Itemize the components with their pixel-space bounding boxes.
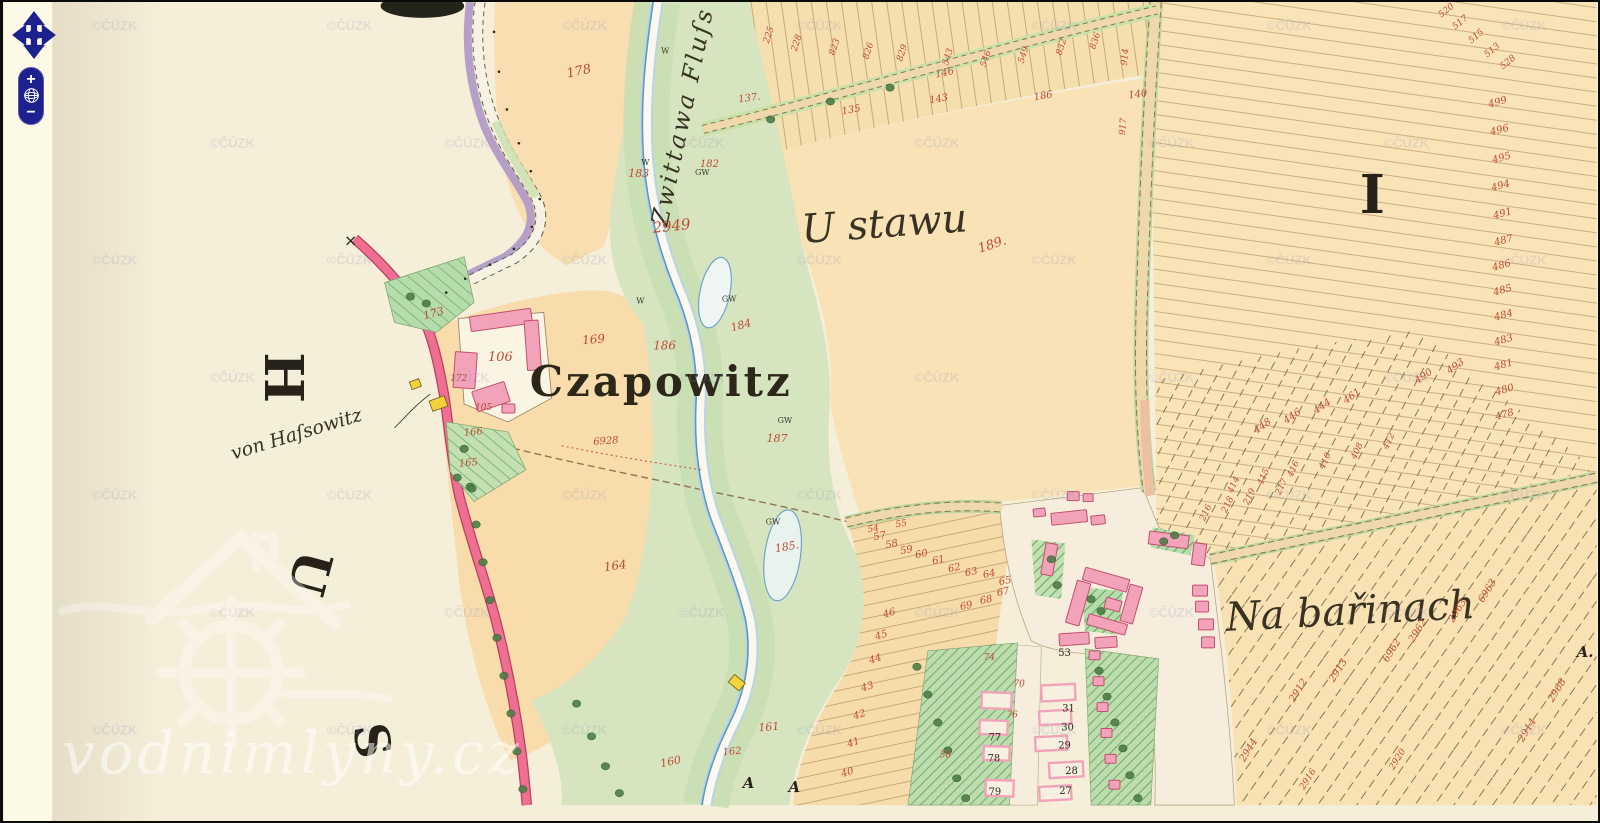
tree-symbol [479, 559, 487, 566]
cuzk-watermark: ©ČÚZK [914, 605, 960, 620]
cuzk-watermark: ©ČÚZK [679, 605, 725, 620]
groundwater-label: W [636, 297, 645, 306]
building [1191, 543, 1207, 566]
letter-a: A. [1575, 643, 1594, 661]
house-number: 28 [1065, 766, 1078, 777]
parcel-number: 70 [1013, 680, 1025, 690]
building [1202, 637, 1215, 648]
tree-symbol [572, 700, 580, 707]
tree-symbol [953, 775, 961, 782]
cuzk-watermark: ©ČÚZK [1384, 135, 1430, 150]
cuzk-watermark: ©ČÚZK [562, 253, 608, 268]
house-number: 78 [988, 753, 1001, 764]
building [1083, 494, 1093, 502]
zoom-in-button[interactable]: + [18, 72, 44, 86]
building [502, 404, 515, 413]
house-number: 77 [989, 732, 1002, 743]
cuzk-watermark: ©ČÚZK [1266, 722, 1312, 737]
cuzk-watermark: ©ČÚZK [679, 370, 725, 385]
tree-symbol [615, 790, 623, 797]
cuzk-watermark: ©ČÚZK [1031, 18, 1077, 33]
building [1093, 677, 1104, 686]
tree-symbol [1053, 582, 1061, 589]
tree-symbol [1047, 556, 1055, 563]
cuzk-watermark: ©ČÚZK [209, 370, 255, 385]
house-outline [981, 692, 1011, 709]
cuzk-watermark: ©ČÚZK [1501, 488, 1547, 503]
building [1199, 619, 1214, 630]
building [1193, 585, 1208, 596]
tree-symbol [1170, 532, 1178, 539]
historic-cadastral-map-viewer[interactable]: CzapowitzU stawuNa bařinachvon Haſsowitz… [0, 0, 1600, 823]
cuzk-watermark: ©ČÚZK [562, 722, 608, 737]
cuzk-watermark: ©ČÚZK [92, 18, 138, 33]
cuzk-watermark: ©ČÚZK [327, 18, 373, 33]
pan-up-button[interactable] [23, 11, 45, 32]
place-label-czapowitz: Czapowitz [530, 357, 793, 406]
cuzk-watermark: ©ČÚZK [327, 253, 373, 268]
building [1101, 728, 1112, 737]
cuzk-watermark: ©ČÚZK [1266, 488, 1312, 503]
tree-symbol [1095, 667, 1103, 674]
terrain-layer [4, 2, 1596, 821]
cuzk-watermark: ©ČÚZK [914, 370, 960, 385]
cuzk-watermark: ©ČÚZK [92, 488, 138, 503]
cuzk-watermark: ©ČÚZK [1266, 253, 1312, 268]
parcel-number: 165 [458, 457, 478, 470]
cuzk-watermark: ©ČÚZK [444, 605, 490, 620]
building [1095, 636, 1118, 648]
tree-symbol [1087, 596, 1095, 603]
cuzk-watermark: ©ČÚZK [327, 488, 373, 503]
tree-symbol [1126, 772, 1134, 779]
pan-down-button[interactable] [23, 38, 45, 59]
parcel-number: 186 [653, 338, 676, 352]
tree-symbol [1134, 795, 1142, 802]
parcel-number: 55 [895, 519, 908, 531]
cuzk-watermark: ©ČÚZK [1501, 253, 1547, 268]
tree-symbol [1111, 719, 1119, 726]
pan-center[interactable] [30, 31, 38, 39]
cuzk-watermark: ©ČÚZK [562, 18, 608, 33]
cuzk-watermark: ©ČÚZK [797, 488, 843, 503]
tree-symbol [468, 485, 476, 492]
building [1059, 632, 1090, 646]
letter-a: A [787, 778, 801, 796]
cuzk-watermark: ©ČÚZK [1031, 253, 1077, 268]
zoom-control: + − [18, 67, 44, 125]
tree-symbol [500, 672, 508, 679]
groundwater-label: GW [766, 517, 781, 526]
cuzk-watermark: ©ČÚZK [444, 135, 490, 150]
cuzk-watermark: ©ČÚZK [1384, 605, 1430, 620]
tree-symbol [1119, 745, 1127, 752]
cuzk-watermark: ©ČÚZK [1384, 370, 1430, 385]
house-number: 79 [989, 787, 1002, 798]
parcel-number: 74 [984, 653, 996, 663]
parcel-number: 106 [488, 350, 513, 365]
cuzk-watermark: ©ČÚZK [797, 722, 843, 737]
tree-symbol [486, 596, 494, 603]
pan-control[interactable] [11, 10, 57, 60]
house-outline [1041, 684, 1076, 702]
tree-symbol [924, 691, 932, 698]
globe-icon[interactable] [23, 87, 40, 104]
groundwater-label: W [641, 158, 650, 167]
parcel-number: 169 [582, 331, 606, 347]
cuzk-watermark: ©ČÚZK [1501, 18, 1547, 33]
letter-a: A [741, 774, 755, 792]
tree-symbol [406, 293, 414, 300]
groundwater-label: W [661, 47, 670, 56]
tree-symbol [493, 634, 501, 641]
building [1091, 515, 1106, 525]
cuzk-watermark: ©ČÚZK [1149, 370, 1195, 385]
tree-symbol [507, 710, 515, 717]
cuzk-watermark: ©ČÚZK [679, 135, 725, 150]
tree-symbol [472, 521, 480, 528]
tree-symbol [886, 84, 894, 91]
parcel-number: 162 [722, 746, 742, 759]
parcel-number: 914 [1120, 48, 1131, 66]
building [1089, 651, 1100, 660]
tree-symbol [826, 98, 834, 105]
building [1109, 780, 1120, 789]
groundwater-label: GW [695, 168, 710, 177]
tree-symbol [1103, 693, 1111, 700]
building [1097, 703, 1108, 712]
tree-symbol [913, 663, 921, 670]
parcel-number: 183 [628, 167, 649, 180]
tree-symbol [453, 474, 461, 481]
tree-symbol [1097, 607, 1105, 614]
parcel-number: 166 [463, 426, 483, 439]
parcel-number: 917 [1118, 117, 1129, 135]
site-watermark-text: vodnimlyny.cz [62, 719, 523, 787]
cuzk-watermark: ©ČÚZK [1149, 135, 1195, 150]
cuzk-watermark: ©ČÚZK [797, 18, 843, 33]
cuzk-watermark: ©ČÚZK [562, 488, 608, 503]
tree-symbol [766, 116, 774, 123]
tree-symbol [601, 763, 609, 770]
groundwater-label: GW [778, 416, 793, 425]
building [1033, 508, 1046, 517]
cuzk-watermark: ©ČÚZK [1031, 488, 1077, 503]
zoom-out-button[interactable]: − [18, 105, 44, 119]
cuzk-watermark: ©ČÚZK [1149, 605, 1195, 620]
cuzk-watermark: ©ČÚZK [797, 253, 843, 268]
tree-symbol [422, 300, 430, 307]
building [1105, 754, 1116, 763]
tree-symbol [1160, 538, 1168, 545]
sheet-letter-h: H [252, 352, 315, 403]
house-number: 53 [1058, 648, 1071, 659]
tree-symbol [934, 719, 942, 726]
parcel-number: 6928 [593, 435, 619, 448]
house-number: 31 [1062, 704, 1075, 715]
parcel-number: 105 [475, 403, 492, 413]
cuzk-watermark: ©ČÚZK [914, 135, 960, 150]
cuzk-watermark: ©ČÚZK [92, 253, 138, 268]
parcel-number: 187 [767, 432, 788, 445]
building [1196, 601, 1209, 612]
tree-symbol [962, 795, 970, 802]
cuzk-watermark: ©ČÚZK [444, 370, 490, 385]
cuzk-watermark: ©ČÚZK [209, 135, 255, 150]
cuzk-watermark: ©ČÚZK [1266, 18, 1312, 33]
house-number: 29 [1058, 740, 1071, 751]
parcel-number: 76 [1006, 711, 1018, 721]
map-navigation-controls: + − [9, 10, 65, 125]
cuzk-watermark: ©ČÚZK [1501, 722, 1547, 737]
map-canvas[interactable]: CzapowitzU stawuNa bařinachvon Haſsowitz… [3, 2, 1598, 821]
groundwater-label: GW [722, 295, 737, 304]
sheet-letter-i: I [1360, 163, 1385, 226]
house-number: 27 [1059, 786, 1072, 797]
parcel-number: 58 [940, 750, 952, 760]
cuzk-watermark: ©ČÚZK [1031, 722, 1077, 737]
tree-symbol [460, 445, 468, 452]
parcel-number: 161 [758, 720, 780, 735]
